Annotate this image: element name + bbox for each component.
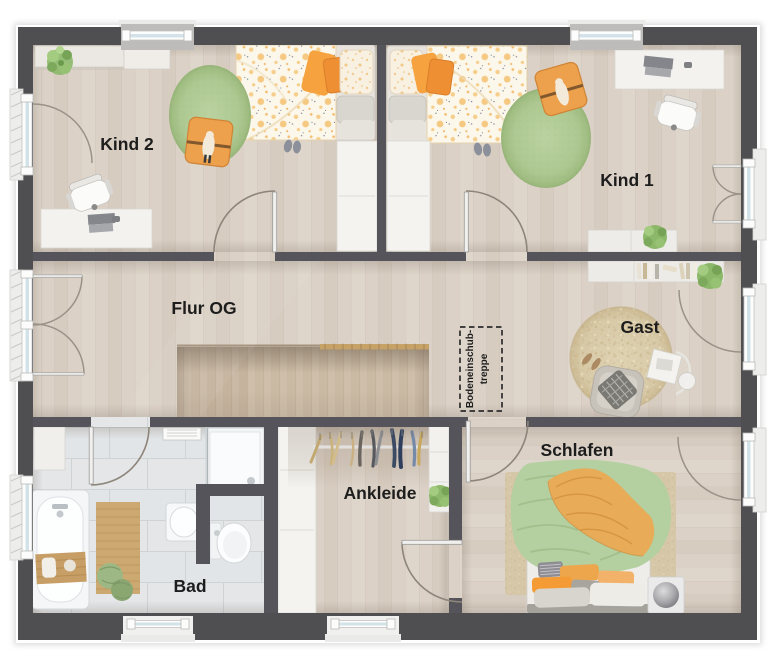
svg-text:Gast: Gast — [621, 317, 660, 337]
svg-text:Bad: Bad — [173, 576, 206, 596]
svg-text:Schlafen: Schlafen — [541, 440, 614, 460]
svg-text:Bodeneinschub-: Bodeneinschub- — [465, 330, 476, 408]
svg-text:Ankleide: Ankleide — [344, 483, 417, 503]
svg-text:Flur OG: Flur OG — [171, 298, 236, 318]
svg-text:Kind 2: Kind 2 — [100, 134, 154, 154]
svg-text:Kind 1: Kind 1 — [600, 170, 654, 190]
svg-text:treppe: treppe — [479, 353, 490, 384]
